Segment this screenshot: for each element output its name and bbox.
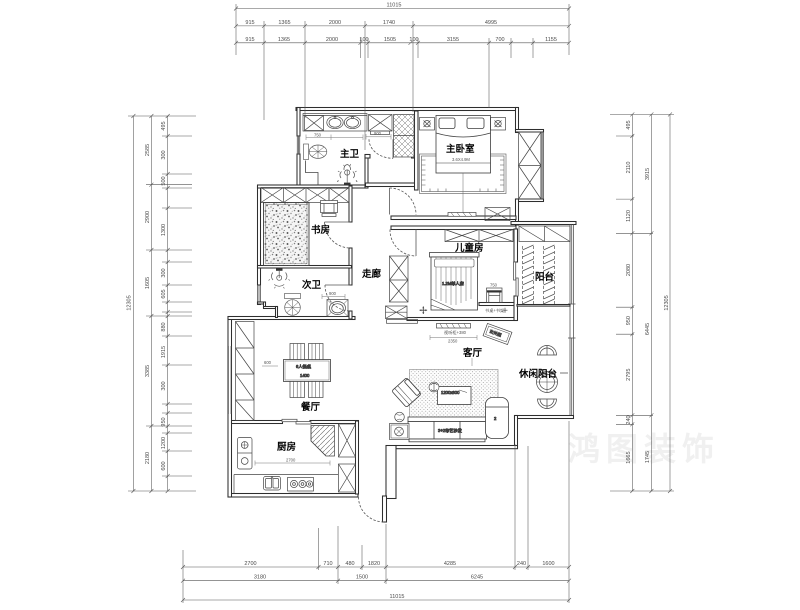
svg-text:3180: 3180 xyxy=(254,575,266,581)
svg-text:书桌+书架: 书桌+书架 xyxy=(485,307,504,314)
svg-text:2000: 2000 xyxy=(329,20,341,26)
svg-text:700: 700 xyxy=(495,37,504,43)
svg-text:2585: 2585 xyxy=(145,144,151,156)
svg-text:4995: 4995 xyxy=(485,20,497,26)
svg-text:495: 495 xyxy=(626,120,632,129)
svg-text:1505: 1505 xyxy=(384,37,396,43)
svg-text:240: 240 xyxy=(626,415,632,424)
svg-text:儿童房: 儿童房 xyxy=(454,242,484,254)
svg-text:2900: 2900 xyxy=(145,211,151,223)
svg-text:2700: 2700 xyxy=(244,561,256,567)
svg-text:视听柜+380: 视听柜+380 xyxy=(444,329,467,336)
svg-text:1500: 1500 xyxy=(356,575,368,581)
svg-text:100: 100 xyxy=(409,37,418,43)
svg-text:6445: 6445 xyxy=(645,323,651,335)
svg-text:710: 710 xyxy=(323,561,332,567)
svg-text:915: 915 xyxy=(245,20,254,26)
svg-text:书房: 书房 xyxy=(311,224,330,236)
svg-text:900: 900 xyxy=(374,131,382,136)
svg-text:客厅: 客厅 xyxy=(462,347,483,359)
svg-text:1605: 1605 xyxy=(145,277,151,289)
svg-text:12305: 12305 xyxy=(664,295,670,310)
svg-text:2350: 2350 xyxy=(448,339,458,344)
svg-text:3915: 3915 xyxy=(645,168,651,180)
svg-text:600: 600 xyxy=(264,360,272,365)
svg-text:300: 300 xyxy=(161,381,167,390)
svg-text:11015: 11015 xyxy=(387,3,402,9)
svg-text:950: 950 xyxy=(161,417,167,426)
svg-text:1600: 1600 xyxy=(542,561,554,567)
svg-text:100: 100 xyxy=(359,37,368,43)
svg-text:主卫: 主卫 xyxy=(340,148,360,160)
svg-text:2795: 2795 xyxy=(626,369,632,381)
svg-text:950: 950 xyxy=(626,316,632,325)
svg-text:11015: 11015 xyxy=(390,594,405,600)
svg-text:500: 500 xyxy=(161,176,167,185)
svg-text:鸿图装饰: 鸿图装饰 xyxy=(568,431,720,467)
svg-text:1915: 1915 xyxy=(161,346,167,358)
svg-text:1200: 1200 xyxy=(161,437,167,449)
svg-text:300: 300 xyxy=(161,268,167,277)
svg-text:厨房: 厨房 xyxy=(277,441,296,453)
svg-text:1740: 1740 xyxy=(383,20,395,26)
svg-text:12305: 12305 xyxy=(126,295,132,310)
svg-text:605: 605 xyxy=(161,289,167,298)
svg-text:2080: 2080 xyxy=(626,264,632,276)
svg-text:次卫: 次卫 xyxy=(302,279,322,291)
svg-text:600: 600 xyxy=(161,461,167,470)
svg-text:6245: 6245 xyxy=(471,575,483,581)
svg-text:1400: 1400 xyxy=(300,373,310,378)
svg-text:750: 750 xyxy=(314,133,322,138)
svg-text:1665: 1665 xyxy=(626,451,632,463)
svg-text:1365: 1365 xyxy=(278,20,290,26)
svg-text:1.2M单人床: 1.2M单人床 xyxy=(442,280,465,287)
svg-text:6人餐桌: 6人餐桌 xyxy=(296,363,312,370)
svg-text:880: 880 xyxy=(161,322,167,331)
svg-text:休闲阳台: 休闲阳台 xyxy=(518,368,558,380)
svg-text:4285: 4285 xyxy=(444,561,456,567)
svg-text:1155: 1155 xyxy=(545,37,557,43)
svg-text:480: 480 xyxy=(345,561,354,567)
svg-text:750: 750 xyxy=(490,283,498,288)
svg-text:走廊: 走廊 xyxy=(361,268,382,280)
svg-text:3.6X4.9M: 3.6X4.9M xyxy=(452,157,470,162)
svg-text:1365: 1365 xyxy=(278,37,290,43)
svg-text:2000: 2000 xyxy=(326,37,338,43)
svg-text:1820: 1820 xyxy=(368,561,380,567)
svg-text:阳台: 阳台 xyxy=(535,271,555,283)
svg-text:餐厅: 餐厅 xyxy=(300,401,321,413)
svg-text:900: 900 xyxy=(329,291,337,296)
svg-text:3385: 3385 xyxy=(145,365,151,377)
svg-text:495: 495 xyxy=(161,121,167,130)
svg-text:300: 300 xyxy=(161,150,167,159)
svg-text:240: 240 xyxy=(517,561,526,567)
svg-text:2700: 2700 xyxy=(286,458,296,463)
svg-text:1745: 1745 xyxy=(645,451,651,463)
svg-text:1200x600: 1200x600 xyxy=(441,390,460,395)
svg-text:主卧室: 主卧室 xyxy=(446,143,475,155)
svg-text:1120: 1120 xyxy=(626,210,632,222)
svg-text:2180: 2180 xyxy=(145,452,151,464)
svg-text:3+2布艺沙发: 3+2布艺沙发 xyxy=(438,427,463,434)
svg-text:1300: 1300 xyxy=(161,224,167,236)
svg-text:915: 915 xyxy=(245,37,254,43)
svg-text:2110: 2110 xyxy=(626,162,632,174)
svg-text:3155: 3155 xyxy=(447,37,459,43)
